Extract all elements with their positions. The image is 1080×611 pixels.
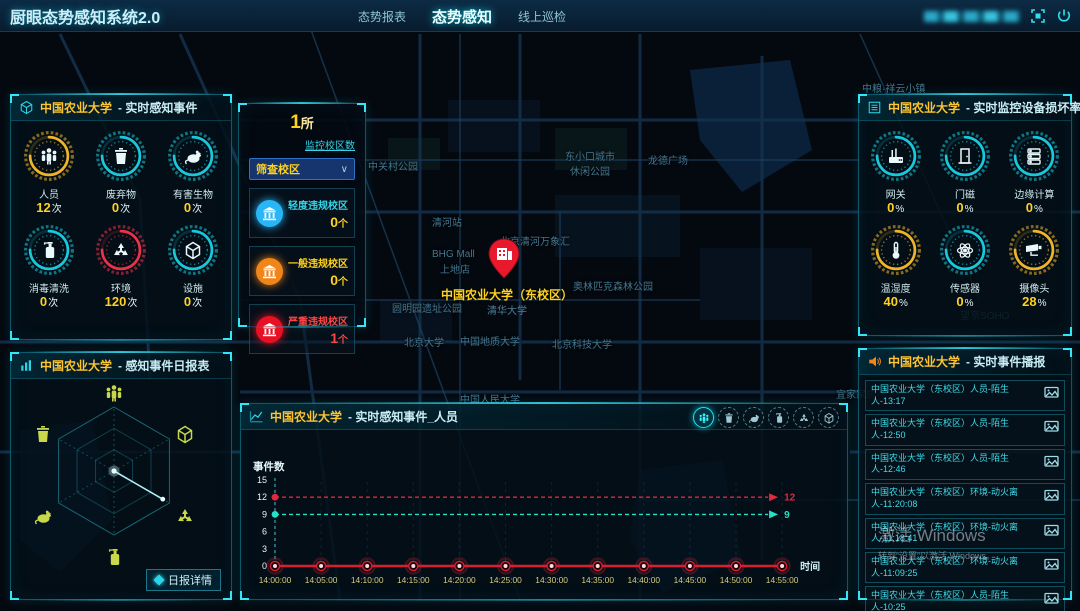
campus-count-number: 1 <box>290 112 301 133</box>
gauge-value: 120次 <box>105 295 138 311</box>
broadcast-item[interactable]: 中国农业大学（东校区）人员-陌生人-12:46 <box>865 449 1065 480</box>
radar-chart <box>11 379 231 566</box>
campus-filter-dropdown[interactable]: 筛查校区 ∨ <box>249 158 355 180</box>
svg-text:14:10:00: 14:10:00 <box>351 575 384 585</box>
gauge-dial <box>938 129 992 183</box>
svg-text:9: 9 <box>784 510 790 521</box>
svg-text:15: 15 <box>257 475 267 485</box>
campus-count-label: 监控校区数 <box>239 134 365 158</box>
gauge-dial <box>869 129 923 183</box>
gauge-value: 0次 <box>112 201 130 217</box>
gauge-sensor: 传感器0% <box>930 223 999 311</box>
violation-count: 0 <box>330 272 338 288</box>
gauge-value: 0% <box>887 201 904 217</box>
gauge-value-number: 0 <box>887 200 894 215</box>
nav-item-0[interactable]: 态势报表 <box>358 8 406 25</box>
cube-icon <box>166 223 220 277</box>
gauge-value-unit: 次 <box>127 298 137 309</box>
svg-text:0: 0 <box>262 561 267 571</box>
gauge-label: 门磁 <box>955 186 975 201</box>
nav-item-1[interactable]: 态势感知 <box>432 6 492 27</box>
panel-title-org: 中国农业大学 <box>40 357 112 374</box>
router-icon <box>869 129 923 183</box>
header-right <box>924 0 1072 32</box>
photo-thumbnail-icon[interactable] <box>1044 419 1059 431</box>
gauge-recycle: 环境120次 <box>85 223 157 311</box>
broadcast-item[interactable]: 中国农业大学（东校区）人员-陌生人-12:50 <box>865 414 1065 445</box>
panel-title-rest: - 实时感知事件_人员 <box>348 408 458 425</box>
photo-thumbnail-icon[interactable] <box>1044 591 1059 603</box>
panel-title-org: 中国农业大学 <box>270 408 342 425</box>
panel-event-broadcast: 中国农业大学 - 实时事件播报 中国农业大学（东校区）人员-陌生人-13:17中… <box>858 348 1072 600</box>
svg-text:时间: 时间 <box>800 560 820 573</box>
button-label: 日报详情 <box>168 572 212 588</box>
gauge-dial <box>94 129 148 183</box>
door-icon <box>938 129 992 183</box>
svg-text:14:25:00: 14:25:00 <box>489 575 522 585</box>
gauge-value-number: 0 <box>112 200 119 215</box>
gauge-value: 0% <box>956 295 973 311</box>
gauge-value: 12次 <box>36 201 61 217</box>
line-chart-icon <box>249 409 264 424</box>
map-label: 北京科技大学 <box>552 336 612 351</box>
power-icon[interactable] <box>1056 8 1072 24</box>
toolbar-spray-icon[interactable] <box>768 407 789 428</box>
gauge-server: 边缘计算0% <box>1000 129 1069 217</box>
panel-daily-report: 中国农业大学 - 感知事件日报表 日报详情 <box>10 352 232 600</box>
app-title: 厨眼态势感知系统2.0 <box>10 4 160 28</box>
map-label: 中国地质大学 <box>460 333 520 348</box>
gauge-value-unit: % <box>965 298 974 309</box>
panel-title-rest: - 感知事件日报表 <box>118 357 209 374</box>
people-icon <box>104 383 124 403</box>
gauge-label: 温湿度 <box>881 280 911 295</box>
marker-label: 中国农业大学（东校区） <box>432 286 582 303</box>
map-label: 上地店 <box>440 261 470 276</box>
toolbar-cube-icon[interactable] <box>818 407 839 428</box>
panel-title: 中国农业大学 - 实时感知事件 <box>11 95 231 121</box>
camera-icon <box>1007 223 1061 277</box>
building-icon <box>256 316 283 343</box>
dropdown-label: 筛查校区 <box>256 161 300 177</box>
gauge-dial <box>938 223 992 277</box>
gauge-label: 边缘计算 <box>1014 186 1054 201</box>
speaker-icon <box>867 354 882 369</box>
photo-thumbnail-icon[interactable] <box>1044 385 1059 397</box>
svg-text:12: 12 <box>257 492 267 502</box>
campus-violation-row[interactable]: 一般违规校区0个 <box>249 246 355 296</box>
dashboard: 中关村公园清河站东小口城市休闲公园龙德广场中粮·祥云小镇北京清河万象汇BHG M… <box>0 0 1080 611</box>
svg-text:9: 9 <box>262 509 267 519</box>
sensor-icon <box>938 223 992 277</box>
panel-title: 中国农业大学 - 感知事件日报表 <box>11 353 231 379</box>
gauge-dial <box>94 223 148 277</box>
violation-value: 0个 <box>283 272 348 288</box>
server-icon <box>1007 129 1061 183</box>
broadcast-item[interactable]: 中国农业大学（东校区）人员-陌生人-10:25 <box>865 586 1065 611</box>
gauge-value: 0% <box>1026 201 1043 217</box>
gauge-value-unit: % <box>965 204 974 215</box>
gauge-value-number: 28 <box>1022 294 1036 309</box>
svg-text:6: 6 <box>262 527 267 537</box>
map-label: 龙德广场 <box>648 152 688 167</box>
toolbar-people-icon[interactable] <box>693 407 714 428</box>
gauge-value-number: 120 <box>105 294 127 309</box>
broadcast-item-text: 中国农业大学（东校区）环境-动火离人-11:09:25 <box>871 556 1040 579</box>
gauge-label: 传感器 <box>950 280 980 295</box>
broadcast-item[interactable]: 中国农业大学（东校区）环境-动火离人-11:18:41 <box>865 518 1065 549</box>
svg-text:事件数: 事件数 <box>253 460 285 473</box>
svg-text:14:20:00: 14:20:00 <box>443 575 476 585</box>
toolbar-recycle-icon[interactable] <box>793 407 814 428</box>
device-list-icon <box>867 100 882 115</box>
campus-count: 1所 <box>239 112 365 134</box>
gauge-rat: 有害生物0次 <box>157 129 229 217</box>
gauge-dial <box>1007 129 1061 183</box>
gauge-value-unit: % <box>899 298 908 309</box>
gauge-value-number: 0 <box>40 294 47 309</box>
gauge-dial <box>22 223 76 277</box>
broadcast-item-text: 中国农业大学（东校区）环境-动火离人-11:20:08 <box>871 487 1040 510</box>
broadcast-item-text: 中国农业大学（东校区）人员-陌生人-10:25 <box>871 590 1040 611</box>
gauge-door: 门磁0% <box>930 129 999 217</box>
gauge-label: 摄像头 <box>1019 280 1049 295</box>
gauge-value-number: 40 <box>883 294 897 309</box>
cube-icon <box>19 100 34 115</box>
gauge-label: 网关 <box>886 186 906 201</box>
broadcast-item-text: 中国农业大学（东校区）人员-陌生人-12:50 <box>871 418 1040 441</box>
gauge-value: 0次 <box>184 295 202 311</box>
map-label: 北京大学 <box>404 334 444 349</box>
svg-text:14:35:00: 14:35:00 <box>581 575 614 585</box>
gauge-camera: 摄像头28% <box>1000 223 1069 311</box>
campus-violation-row[interactable]: 轻度违规校区0个 <box>249 188 355 238</box>
chevron-down-icon: ∨ <box>341 164 348 175</box>
violation-count: 1 <box>330 330 338 346</box>
gauge-label: 废弃物 <box>106 186 136 201</box>
panel-realtime-events: 中国农业大学 - 实时感知事件 人员12次废弃物0次有害生物0次消毒清洗0次环境… <box>10 94 232 340</box>
line-chart: 03691215事件数12914:00:0014:05:0014:10:0014… <box>241 430 847 603</box>
chart-category-toolbar <box>693 407 839 428</box>
svg-text:14:45:00: 14:45:00 <box>674 575 707 585</box>
toolbar-rat-icon[interactable] <box>743 407 764 428</box>
violation-unit: 个 <box>338 219 348 230</box>
gauge-value-number: 0 <box>956 294 963 309</box>
panel-title: 中国农业大学 - 实时感知事件_人员 <box>241 404 847 430</box>
gauge-value-unit: 次 <box>120 204 130 215</box>
gauge-dial <box>1007 223 1061 277</box>
violation-label: 轻度违规校区 <box>283 197 348 212</box>
panel-title-org: 中国农业大学 <box>888 353 960 370</box>
marker-sublabel: 清华大学 <box>462 302 552 317</box>
thermo-icon <box>869 223 923 277</box>
spray-icon <box>104 547 124 567</box>
map-label: 清河站 <box>432 214 462 229</box>
panel-device-rate: 中国农业大学 - 实时监控设备损坏率 网关0%门磁0%边缘计算0%温湿度40%传… <box>858 94 1072 336</box>
broadcast-item-text: 中国农业大学（东校区）人员-陌生人-13:17 <box>871 384 1040 407</box>
svg-text:12: 12 <box>784 493 796 504</box>
gauge-value-unit: 次 <box>48 298 58 309</box>
building-icon <box>256 200 283 227</box>
gauge-value-number: 0 <box>184 294 191 309</box>
gauge-cube: 设施0次 <box>157 223 229 311</box>
gauge-value-number: 0 <box>1026 200 1033 215</box>
panel-title-rest: - 实时感知事件 <box>118 99 197 116</box>
violation-value: 1个 <box>283 330 348 346</box>
campus-violation-row[interactable]: 严重违规校区1个 <box>249 304 355 354</box>
user-info-redacted <box>924 11 1020 22</box>
photo-thumbnail-icon[interactable] <box>1044 523 1059 535</box>
svg-text:14:05:00: 14:05:00 <box>305 575 338 585</box>
gauge-value: 0次 <box>40 295 58 311</box>
svg-text:14:00:00: 14:00:00 <box>259 575 292 585</box>
violation-count: 0 <box>330 214 338 230</box>
map-label: 东小口城市休闲公园 <box>562 148 618 178</box>
diamond-icon <box>153 574 164 585</box>
gauge-value: 40% <box>883 295 907 311</box>
gauge-label: 有害生物 <box>173 186 213 201</box>
gauge-value-unit: % <box>1038 298 1047 309</box>
map-label: 中关村公园 <box>368 158 418 173</box>
gauge-thermo: 温湿度40% <box>861 223 930 311</box>
people-icon <box>22 129 76 183</box>
rat-icon <box>33 506 53 526</box>
broadcast-item-text: 中国农业大学（东校区）环境-动火离人-11:18:41 <box>871 522 1040 545</box>
campus-summary-popup: 1所 监控校区数 筛查校区 ∨ 轻度违规校区0个一般违规校区0个严重违规校区1个 <box>238 103 366 327</box>
violation-unit: 个 <box>338 277 348 288</box>
gauge-value-number: 0 <box>184 200 191 215</box>
gauge-value: 0次 <box>184 201 202 217</box>
toolbar-trash-icon[interactable] <box>718 407 739 428</box>
svg-text:14:15:00: 14:15:00 <box>397 575 430 585</box>
gauge-value: 0% <box>956 201 973 217</box>
photo-thumbnail-icon[interactable] <box>1044 454 1059 466</box>
recycle-icon <box>175 506 195 526</box>
svg-text:14:30:00: 14:30:00 <box>535 575 568 585</box>
violation-unit: 个 <box>338 335 348 346</box>
gauge-label: 人员 <box>39 186 59 201</box>
panel-title: 中国农业大学 - 实时监控设备损坏率 <box>859 95 1071 121</box>
map-marker-pin[interactable] <box>487 238 521 285</box>
gauge-dial <box>869 223 923 277</box>
gauge-dial <box>22 129 76 183</box>
bar-chart-icon <box>19 358 34 373</box>
violation-label: 一般违规校区 <box>283 255 348 270</box>
fullscreen-icon[interactable] <box>1030 8 1046 24</box>
gauge-value: 28% <box>1022 295 1046 311</box>
svg-text:14:50:00: 14:50:00 <box>720 575 753 585</box>
photo-thumbnail-icon[interactable] <box>1044 488 1059 500</box>
nav-item-2[interactable]: 线上巡检 <box>518 8 566 25</box>
recycle-icon <box>94 223 148 277</box>
gauge-value-number: 12 <box>36 200 50 215</box>
broadcast-item-text: 中国农业大学（东校区）人员-陌生人-12:46 <box>871 453 1040 476</box>
photo-thumbnail-icon[interactable] <box>1044 557 1059 569</box>
gauge-value-unit: 次 <box>52 204 62 215</box>
broadcast-item[interactable]: 中国农业大学（东校区）环境-动火离人-11:20:08 <box>865 483 1065 514</box>
panel-title-org: 中国农业大学 <box>888 99 960 116</box>
gauge-value-unit: 次 <box>192 298 202 309</box>
building-icon <box>256 258 283 285</box>
cube-icon <box>175 424 195 444</box>
gauge-dial <box>166 223 220 277</box>
violation-label: 严重违规校区 <box>283 313 348 328</box>
panel-title-rest: - 实时事件播报 <box>966 353 1045 370</box>
panel-title: 中国农业大学 - 实时事件播报 <box>859 349 1071 375</box>
app-header: 厨眼态势感知系统2.0 态势报表态势感知线上巡检 <box>0 0 1080 32</box>
svg-text:3: 3 <box>262 544 267 554</box>
map-label: BHG Mall <box>432 249 475 260</box>
rat-icon <box>166 129 220 183</box>
gauge-label: 环境 <box>111 280 131 295</box>
broadcast-item[interactable]: 中国农业大学（东校区）环境-动火离人-11:09:25 <box>865 552 1065 583</box>
map-label: 奥林匹克森林公园 <box>573 278 653 293</box>
violation-value: 0个 <box>283 214 348 230</box>
panel-title-org: 中国农业大学 <box>40 99 112 116</box>
gauge-label: 消毒清洗 <box>29 280 69 295</box>
gauge-value-unit: % <box>895 204 904 215</box>
daily-report-detail-button[interactable]: 日报详情 <box>146 569 221 591</box>
gauge-spray: 消毒清洗0次 <box>13 223 85 311</box>
main-nav: 态势报表态势感知线上巡检 <box>358 0 566 32</box>
gauge-people: 人员12次 <box>13 129 85 217</box>
campus-count-unit: 所 <box>301 116 314 131</box>
gauge-value-unit: % <box>1034 204 1043 215</box>
svg-text:14:55:00: 14:55:00 <box>766 575 799 585</box>
panel-event-line-chart: 中国农业大学 - 实时感知事件_人员 03691215事件数12914:00:0… <box>240 403 848 600</box>
gauge-value-number: 0 <box>956 200 963 215</box>
trash-icon <box>33 424 53 444</box>
gauge-trash: 废弃物0次 <box>85 129 157 217</box>
trash-icon <box>94 129 148 183</box>
gauge-router: 网关0% <box>861 129 930 217</box>
gauge-label: 设施 <box>183 280 203 295</box>
spray-icon <box>22 223 76 277</box>
svg-text:14:40:00: 14:40:00 <box>627 575 660 585</box>
gauge-dial <box>166 129 220 183</box>
broadcast-item[interactable]: 中国农业大学（东校区）人员-陌生人-13:17 <box>865 380 1065 411</box>
event-line-chart-svg: 03691215事件数12914:00:0014:05:0014:10:0014… <box>241 430 833 598</box>
gauge-value-unit: 次 <box>192 204 202 215</box>
